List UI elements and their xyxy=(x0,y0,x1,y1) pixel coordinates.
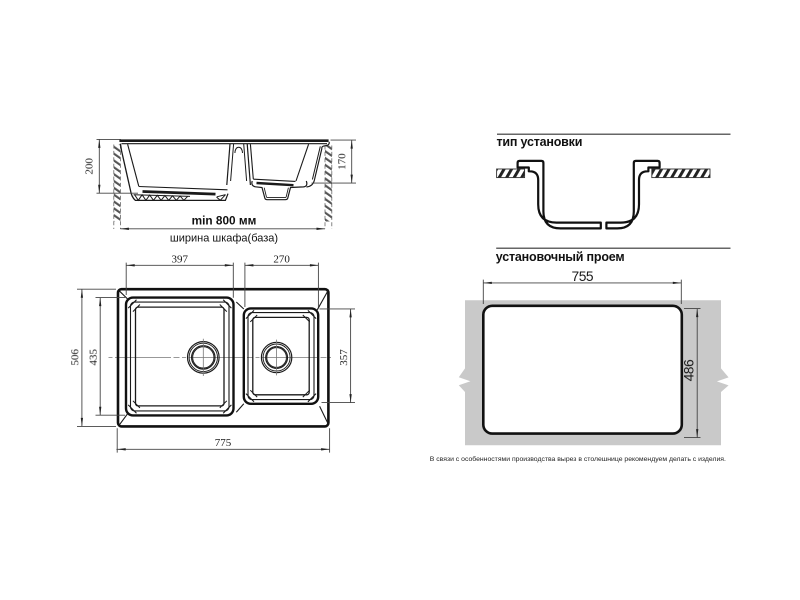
svg-text:установочный проем: установочный проем xyxy=(496,250,625,264)
svg-text:200: 200 xyxy=(84,158,96,175)
svg-text:min 800 мм: min 800 мм xyxy=(192,214,257,228)
svg-text:В связи с особенностями произв: В связи с особенностями производства выр… xyxy=(430,455,726,463)
svg-text:357: 357 xyxy=(338,349,350,366)
svg-text:397: 397 xyxy=(171,253,188,265)
svg-text:270: 270 xyxy=(273,253,290,265)
svg-text:506: 506 xyxy=(69,349,81,366)
svg-text:775: 775 xyxy=(215,437,232,449)
svg-text:170: 170 xyxy=(336,153,348,170)
svg-text:тип установки: тип установки xyxy=(497,135,583,149)
svg-text:ширина шкафа(база): ширина шкафа(база) xyxy=(170,233,278,245)
svg-text:435: 435 xyxy=(88,349,100,366)
svg-text:755: 755 xyxy=(572,269,594,284)
svg-text:486: 486 xyxy=(682,359,697,381)
